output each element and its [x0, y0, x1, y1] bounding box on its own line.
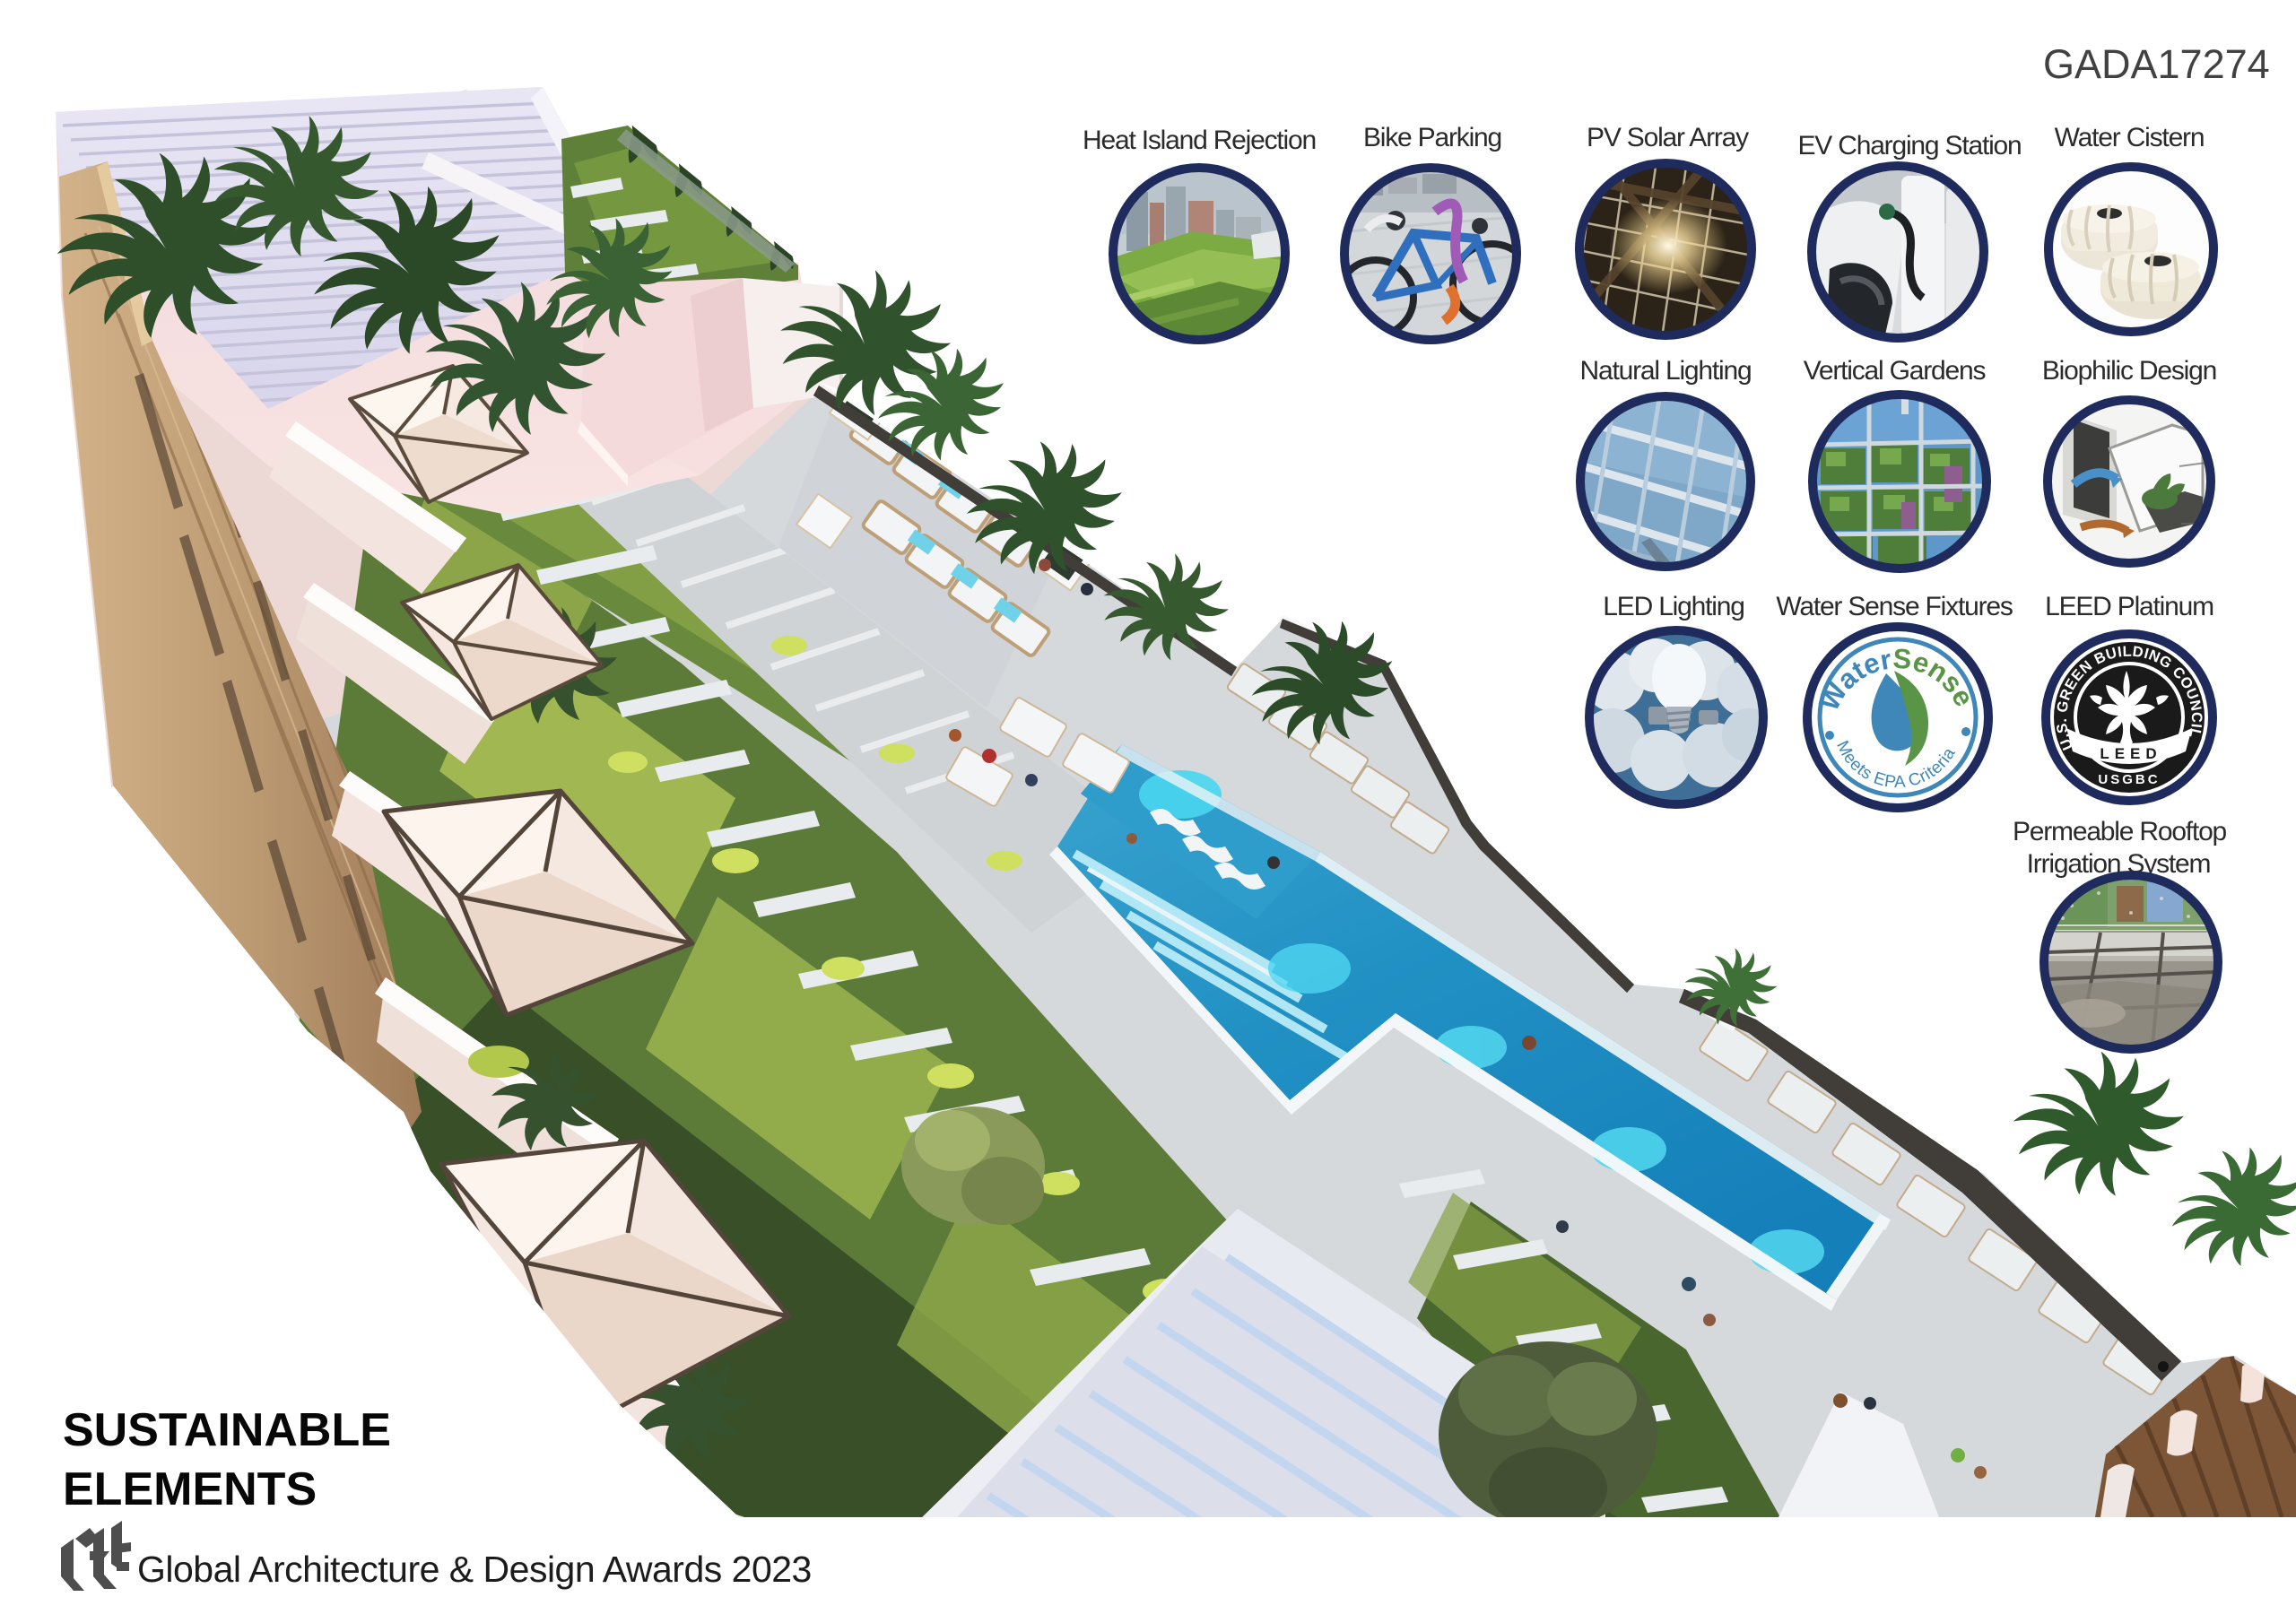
svg-text:PV Solar Array: PV Solar Array [1587, 123, 1749, 152]
svg-text:Permeable Rooftop: Permeable Rooftop [2013, 817, 2227, 846]
svg-text:LEED: LEED [2100, 745, 2161, 762]
svg-text:Water Sense Fixtures: Water Sense Fixtures [1776, 592, 2013, 621]
svg-text:USGBC: USGBC [2098, 772, 2160, 787]
svg-text:GADA17274: GADA17274 [2043, 41, 2270, 87]
svg-text:ELEMENTS: ELEMENTS [63, 1463, 317, 1515]
svg-text:Global Architecture & Design A: Global Architecture & Design Awards 2023 [137, 1549, 812, 1590]
svg-text:Natural Lighting: Natural Lighting [1580, 356, 1752, 386]
svg-text:Biophilic Design: Biophilic Design [2042, 356, 2216, 386]
svg-text:Vertical Gardens: Vertical Gardens [1804, 356, 1986, 386]
svg-text:LEED Platinum: LEED Platinum [2045, 592, 2213, 621]
svg-text:Bike Parking: Bike Parking [1363, 123, 1501, 152]
svg-text:SUSTAINABLE: SUSTAINABLE [63, 1404, 391, 1456]
svg-text:Water Cistern: Water Cistern [2055, 123, 2205, 152]
svg-text:Heat Island Rejection: Heat Island Rejection [1083, 126, 1316, 155]
svg-text:LED Lighting: LED Lighting [1603, 592, 1744, 621]
svg-text:EV Charging Station: EV Charging Station [1797, 131, 2021, 161]
